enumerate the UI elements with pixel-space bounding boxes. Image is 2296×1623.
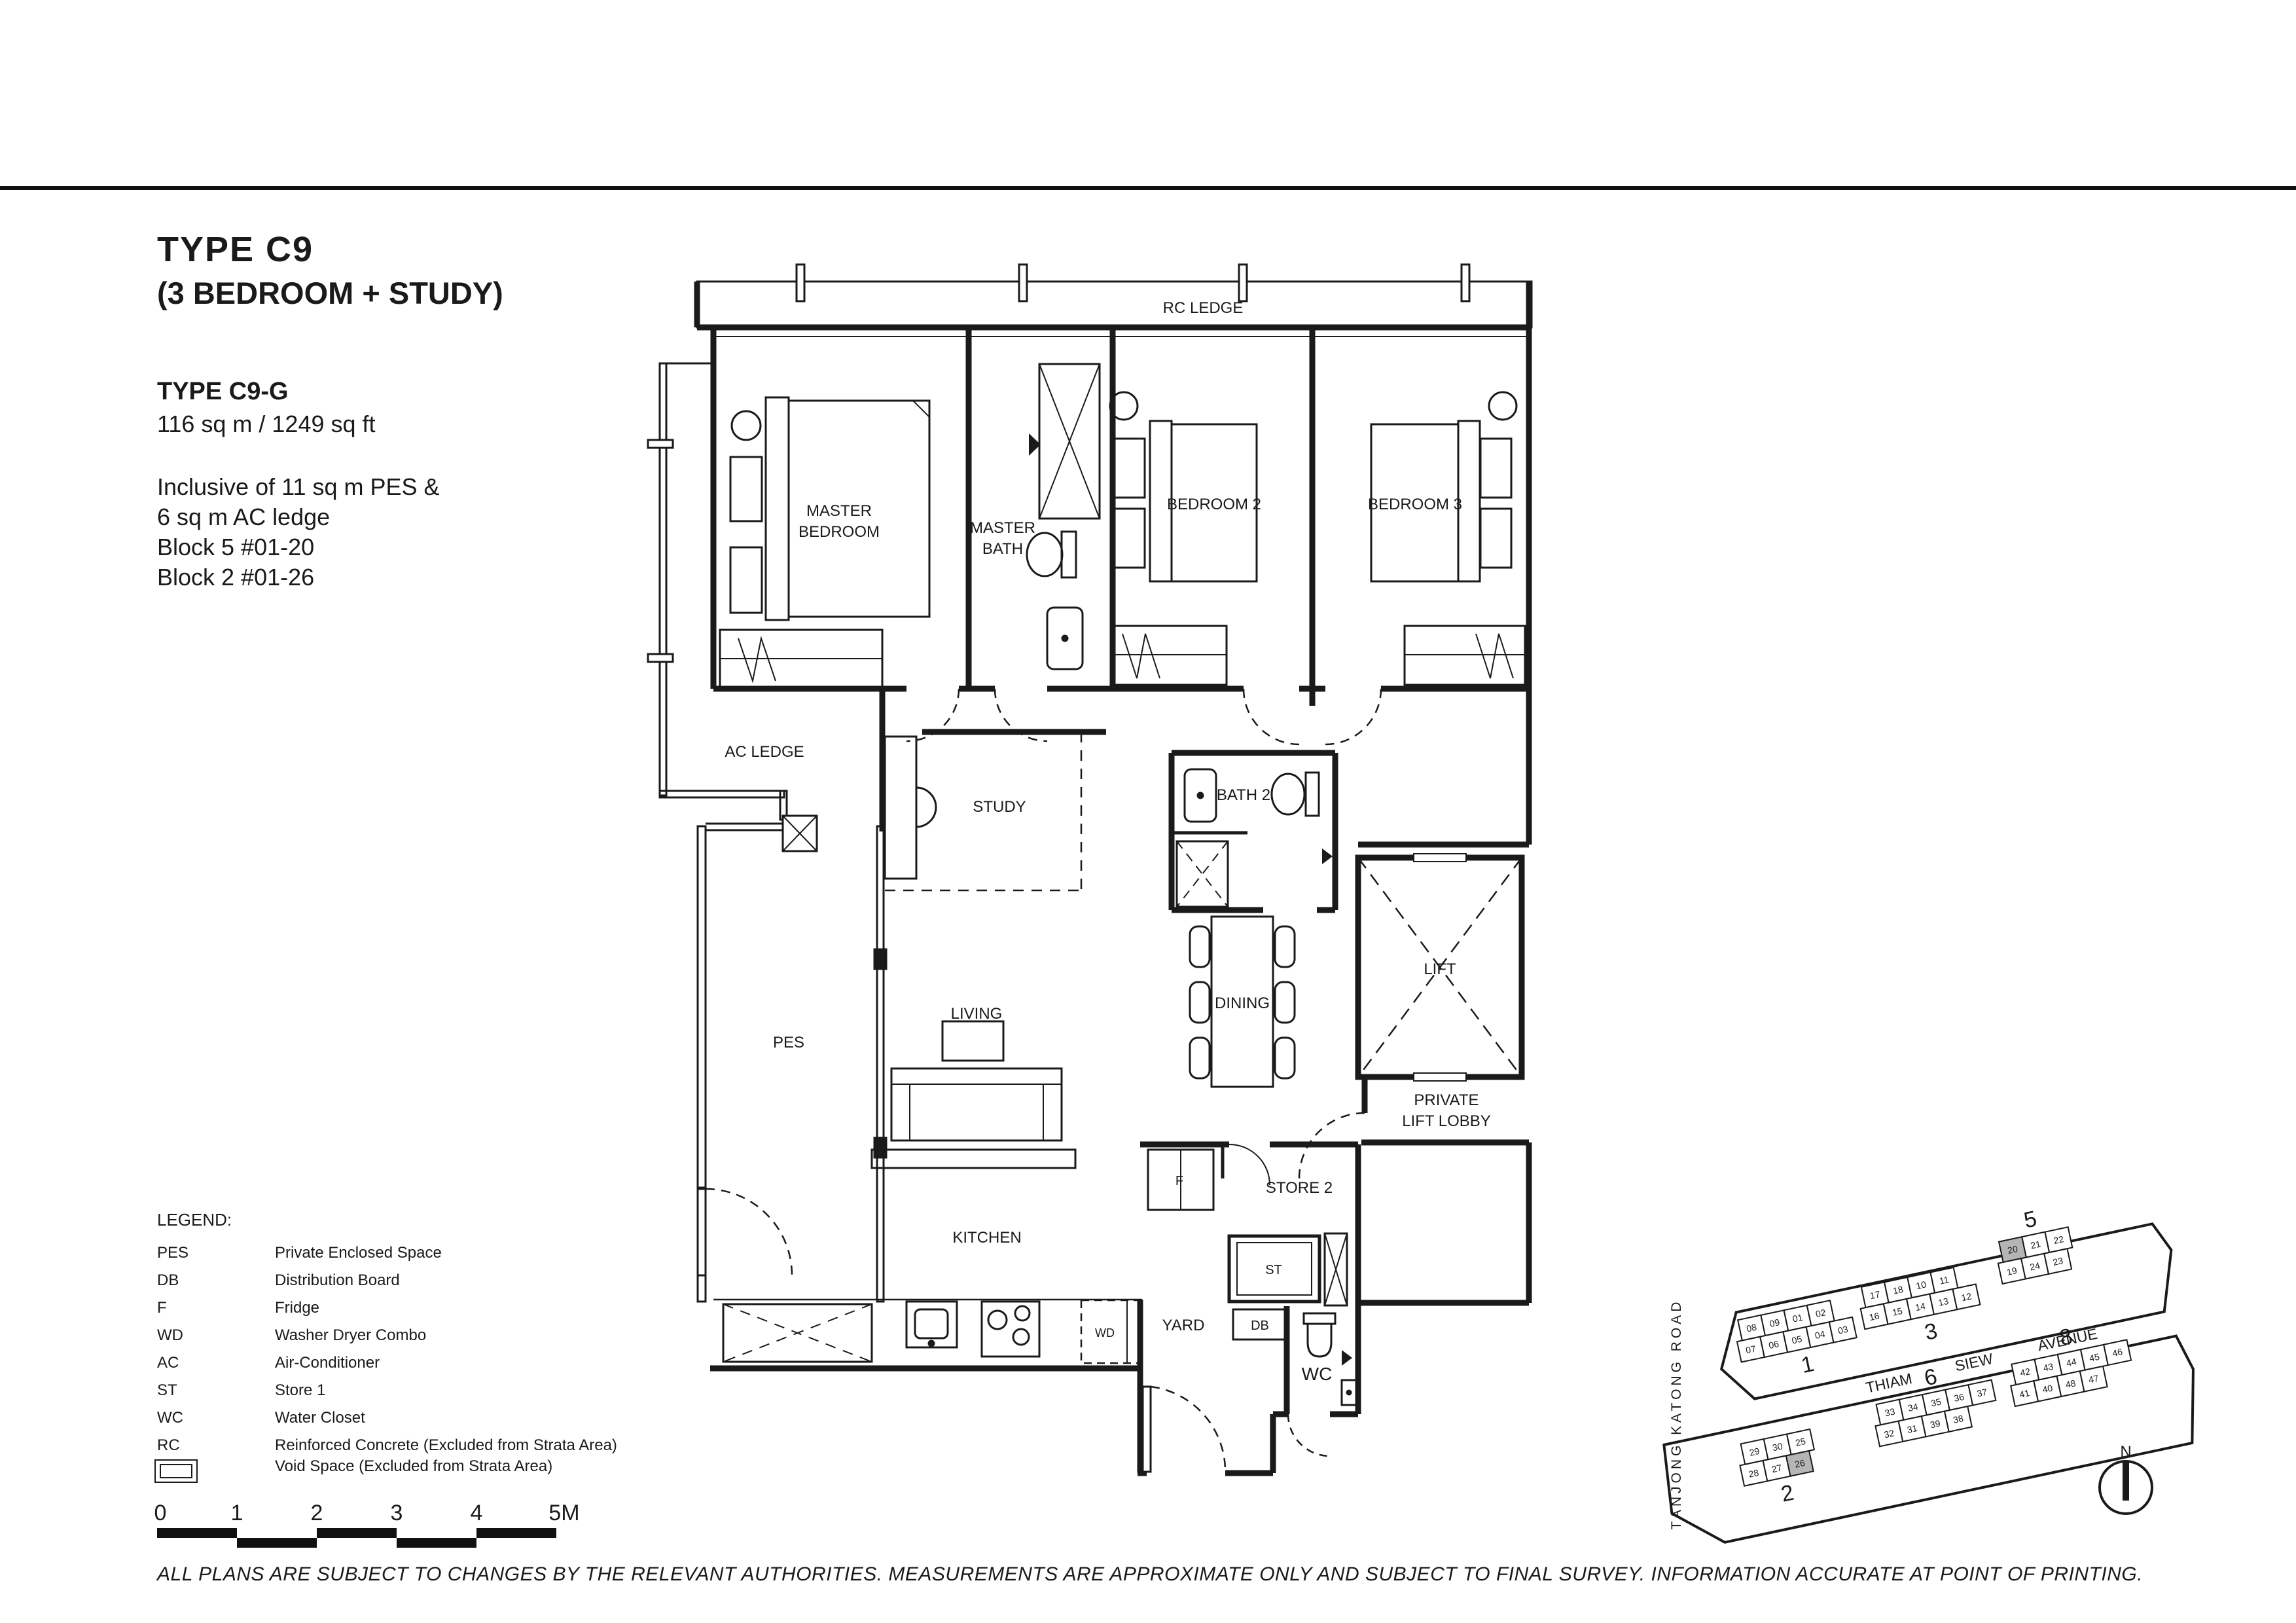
scale-tick: 3 <box>391 1501 403 1525</box>
label-private-2: LIFT LOBBY <box>1402 1112 1491 1130</box>
room-bath2 <box>1172 753 1335 910</box>
room-bedroom-3 <box>1371 392 1525 685</box>
plan-canvas: RC LEDGE MASTER BEDROOM MASTER BATH BEDR… <box>0 0 2296 1623</box>
label-kitchen: KITCHEN <box>952 1229 1021 1247</box>
label-bedroom2: BEDROOM 2 <box>1167 496 1261 513</box>
scale-tick: 4 <box>471 1501 483 1525</box>
label-store2: STORE 2 <box>1266 1179 1333 1197</box>
label-rc-ledge: RC LEDGE <box>1163 299 1244 317</box>
floor-plan: RC LEDGE MASTER BEDROOM MASTER BATH BEDR… <box>648 264 1532 1473</box>
room-kitchen <box>713 1300 1142 1363</box>
scale-tick: 5M <box>548 1501 579 1525</box>
scale-bar: 0 1 2 3 4 5M <box>154 1501 580 1548</box>
street-tanjong-katong: TANJONG KATONG ROAD <box>1669 1299 1684 1530</box>
label-bath2: BATH 2 <box>1217 786 1270 804</box>
label-master-bedroom-2: BEDROOM <box>798 523 880 541</box>
site-plan: 0809010207060504031171810111615141312320… <box>1625 1180 2212 1552</box>
scale-tick: 0 <box>154 1501 167 1525</box>
label-ac-ledge: AC LEDGE <box>725 743 804 761</box>
room-pes <box>698 824 886 1302</box>
site-block-number: 6 <box>1922 1364 1939 1391</box>
site-block-number: 5 <box>2022 1206 2039 1233</box>
room-master-bedroom <box>720 397 929 687</box>
label-wd: WD <box>1095 1326 1115 1340</box>
room-master-bath <box>1027 364 1100 669</box>
label-bedroom3: BEDROOM 3 <box>1368 496 1462 513</box>
room-st-wc <box>1229 1233 1356 1414</box>
label-study: STUDY <box>973 798 1026 816</box>
rc-ledge <box>697 264 1532 337</box>
label-master-bedroom-1: MASTER <box>806 502 872 520</box>
scale-tick: 2 <box>311 1501 323 1525</box>
label-private-1: PRIVATE <box>1414 1091 1479 1109</box>
north-label: N <box>2120 1443 2131 1461</box>
label-living: LIVING <box>951 1005 1003 1023</box>
label-db: DB <box>1251 1319 1269 1333</box>
label-master-bath-1: MASTER <box>970 519 1035 537</box>
ac-ledge <box>648 363 817 851</box>
label-st: ST <box>1265 1263 1282 1277</box>
scale-tick: 1 <box>231 1501 243 1525</box>
label-dining: DINING <box>1215 994 1270 1012</box>
label-wc: WC <box>1302 1364 1333 1384</box>
label-yard: YARD <box>1162 1317 1205 1334</box>
label-master-bath-2: BATH <box>982 540 1023 558</box>
room-living <box>872 1021 1075 1168</box>
label-pes: PES <box>773 1034 804 1051</box>
label-f: F <box>1175 1174 1183 1188</box>
label-lift: LIFT <box>1424 960 1456 978</box>
room-bedroom-2 <box>1110 392 1257 685</box>
